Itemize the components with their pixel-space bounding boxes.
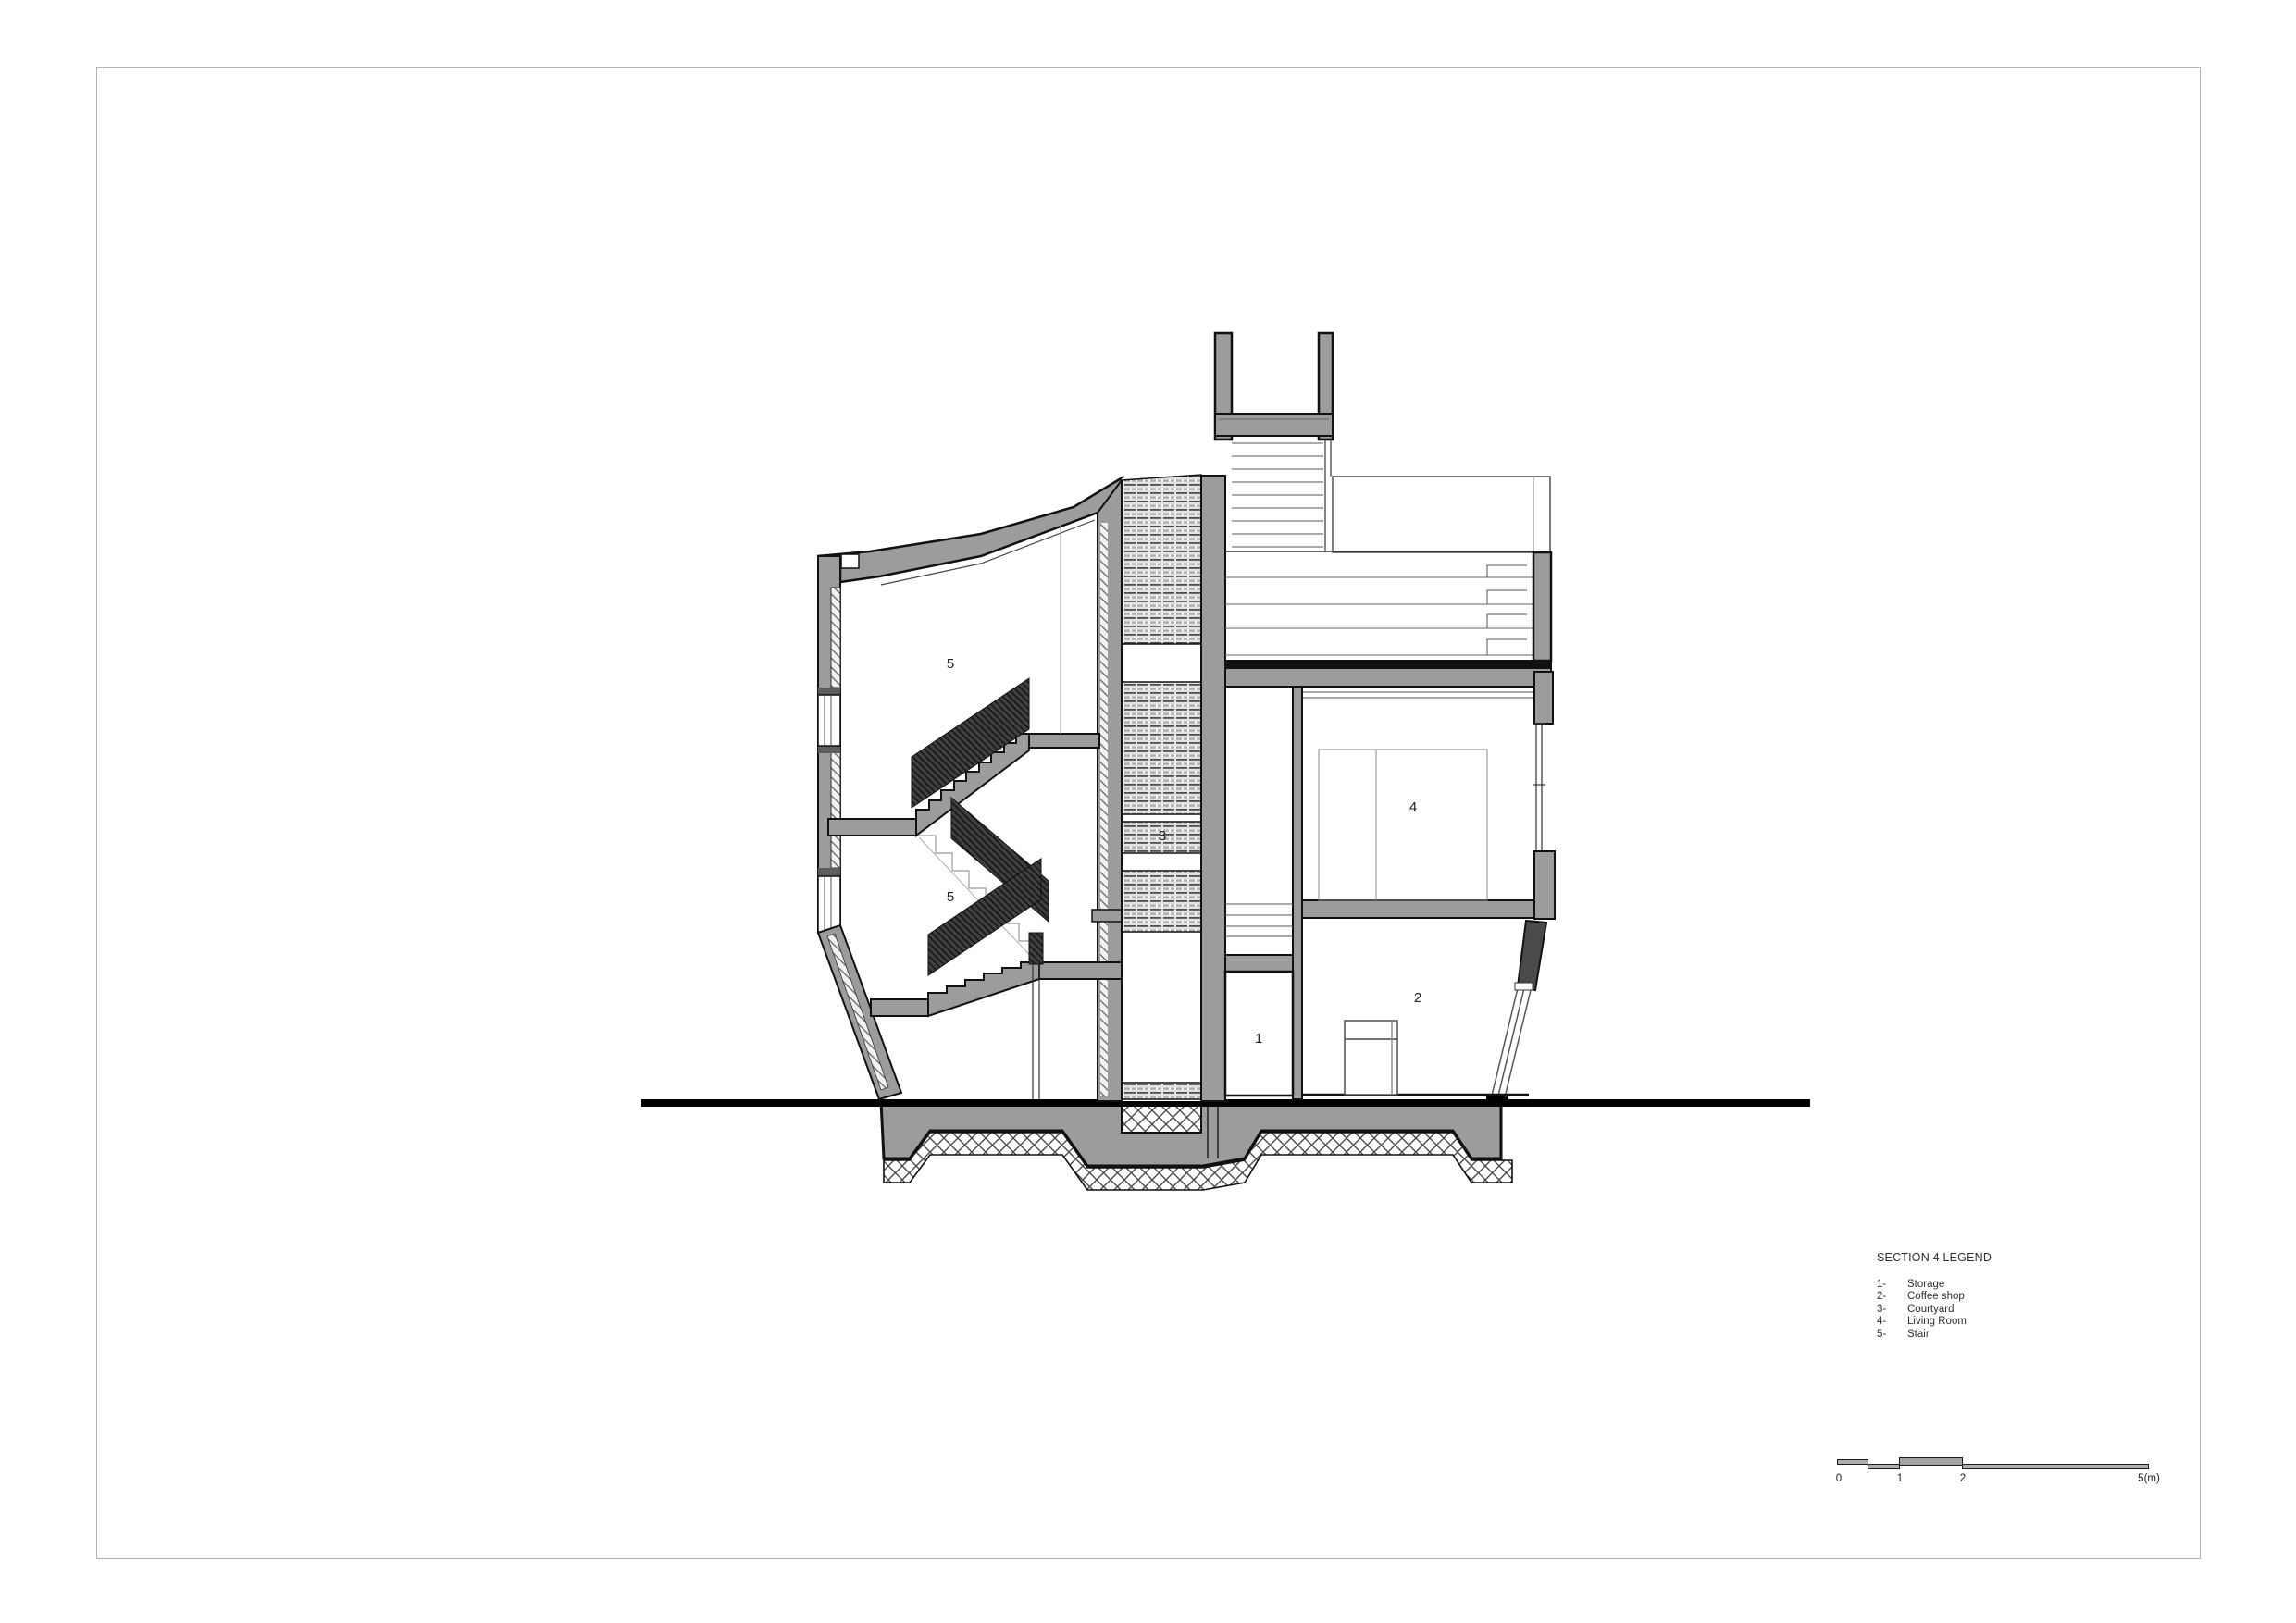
- legend-item-number: 5-: [1877, 1329, 1907, 1341]
- parapet-notch: [841, 554, 859, 568]
- courtyard-paving: [1122, 1103, 1201, 1133]
- room-label-stair-upper: 5: [947, 656, 954, 672]
- terrace-slab-top-edge: [1225, 661, 1551, 669]
- screen-band: [1122, 871, 1201, 932]
- legend-item-number: 1-: [1877, 1279, 1907, 1291]
- slab-through-wall: [1092, 910, 1122, 922]
- legend-item-name: Storage: [1907, 1279, 1944, 1291]
- left-wall-window: [818, 876, 840, 932]
- lower-landing: [871, 999, 928, 1016]
- legend-item: 2- Coffee shop: [1877, 1291, 1992, 1303]
- legend-item-number: 3-: [1877, 1304, 1907, 1316]
- legend-item-name: Courtyard: [1907, 1304, 1955, 1316]
- center-wall: [1201, 476, 1225, 1101]
- floor-slab-lower: [1039, 962, 1122, 979]
- floor-slab-upper: [1029, 734, 1099, 748]
- legend-item-name: Coffee shop: [1907, 1291, 1965, 1303]
- legend-item: 1- Storage: [1877, 1279, 1992, 1291]
- room-label-courtyard: 3: [1159, 828, 1166, 844]
- terrace-step-lines: [1225, 551, 1533, 655]
- legend: SECTION 4 LEGEND 1- Storage 2- Coffee sh…: [1877, 1251, 1992, 1341]
- legend-item: 3- Courtyard: [1877, 1304, 1992, 1316]
- bulkhead-slab: [1215, 414, 1333, 436]
- scale-bar-segment: [1837, 1459, 1868, 1465]
- scale-tick-label: 1: [1897, 1473, 1903, 1484]
- living-room-furniture: [1319, 750, 1487, 900]
- coffee-shop-counter: [1345, 1021, 1397, 1095]
- scale-tick-label: 5(m): [2138, 1473, 2160, 1484]
- legend-item-number: 2-: [1877, 1291, 1907, 1303]
- shaft-wall: [1293, 687, 1302, 1099]
- guardrail-band-lower: [928, 859, 1041, 975]
- slanted-glazing-sill: [1515, 983, 1533, 990]
- screen-band: [1122, 475, 1201, 644]
- scale-bar: 0 1 2 5(m): [1837, 1455, 2170, 1492]
- screen-band: [1122, 1083, 1201, 1099]
- shaft-landing-lines: [1225, 904, 1293, 936]
- scale-bar-segment: [1962, 1464, 2149, 1469]
- room-label-stair-lower: 5: [947, 889, 954, 905]
- left-wall-glazing: [831, 588, 840, 688]
- room-label-coffee-shop: 2: [1414, 990, 1421, 1006]
- foundation: [881, 1101, 1512, 1190]
- left-block: [817, 477, 1123, 1101]
- window-sill: [818, 746, 840, 753]
- section-drawing: 5 5 3 4 1 2: [0, 0, 2296, 1623]
- screen-band: [1122, 682, 1201, 814]
- legend-item-name: Stair: [1907, 1329, 1930, 1341]
- scale-tick-label: 2: [1960, 1473, 1966, 1484]
- window-sill: [818, 868, 840, 876]
- storage-ceiling-slab: [1225, 955, 1293, 972]
- slanted-wall-solid: [1518, 921, 1546, 990]
- living-room-window: [1533, 724, 1545, 851]
- left-wall-window: [818, 695, 840, 746]
- drawing-sheet: 5 5 3 4 1 2 SECTION 4 LEGEND 1- Storage …: [0, 0, 2296, 1623]
- left-wall-glazing: [831, 751, 840, 868]
- legend-item-name: Living Room: [1907, 1316, 1967, 1328]
- mid-landing: [828, 819, 916, 836]
- terrace-parapet-wall: [1533, 552, 1551, 661]
- courtyard-strip: [1122, 475, 1201, 1101]
- slanted-glazing: [1492, 988, 1531, 1097]
- scale-bar-segment: [1868, 1464, 1900, 1469]
- window-sill: [818, 688, 840, 695]
- bulkhead-stair-treads: [1232, 443, 1323, 547]
- stair-column-head: [1029, 933, 1043, 964]
- right-wall-lower: [1534, 851, 1555, 919]
- legend-title: SECTION 4 LEGEND: [1877, 1251, 1992, 1264]
- legend-item-number: 4-: [1877, 1316, 1907, 1328]
- right-block: [1225, 477, 1555, 1099]
- room-label-living-room: 4: [1409, 799, 1417, 815]
- scale-tick-label: 0: [1836, 1473, 1842, 1484]
- room-label-storage: 1: [1255, 1031, 1262, 1047]
- terrace-railing: [1333, 477, 1550, 552]
- living-room-floor-slab: [1302, 900, 1547, 918]
- scale-bar-segment: [1899, 1457, 1963, 1466]
- legend-item: 4- Living Room: [1877, 1316, 1992, 1328]
- stair-flight-lower: [928, 962, 1039, 1016]
- stairhall-wall-core: [1100, 523, 1108, 1096]
- legend-item: 5- Stair: [1877, 1329, 1992, 1341]
- right-wall-upper: [1534, 672, 1553, 724]
